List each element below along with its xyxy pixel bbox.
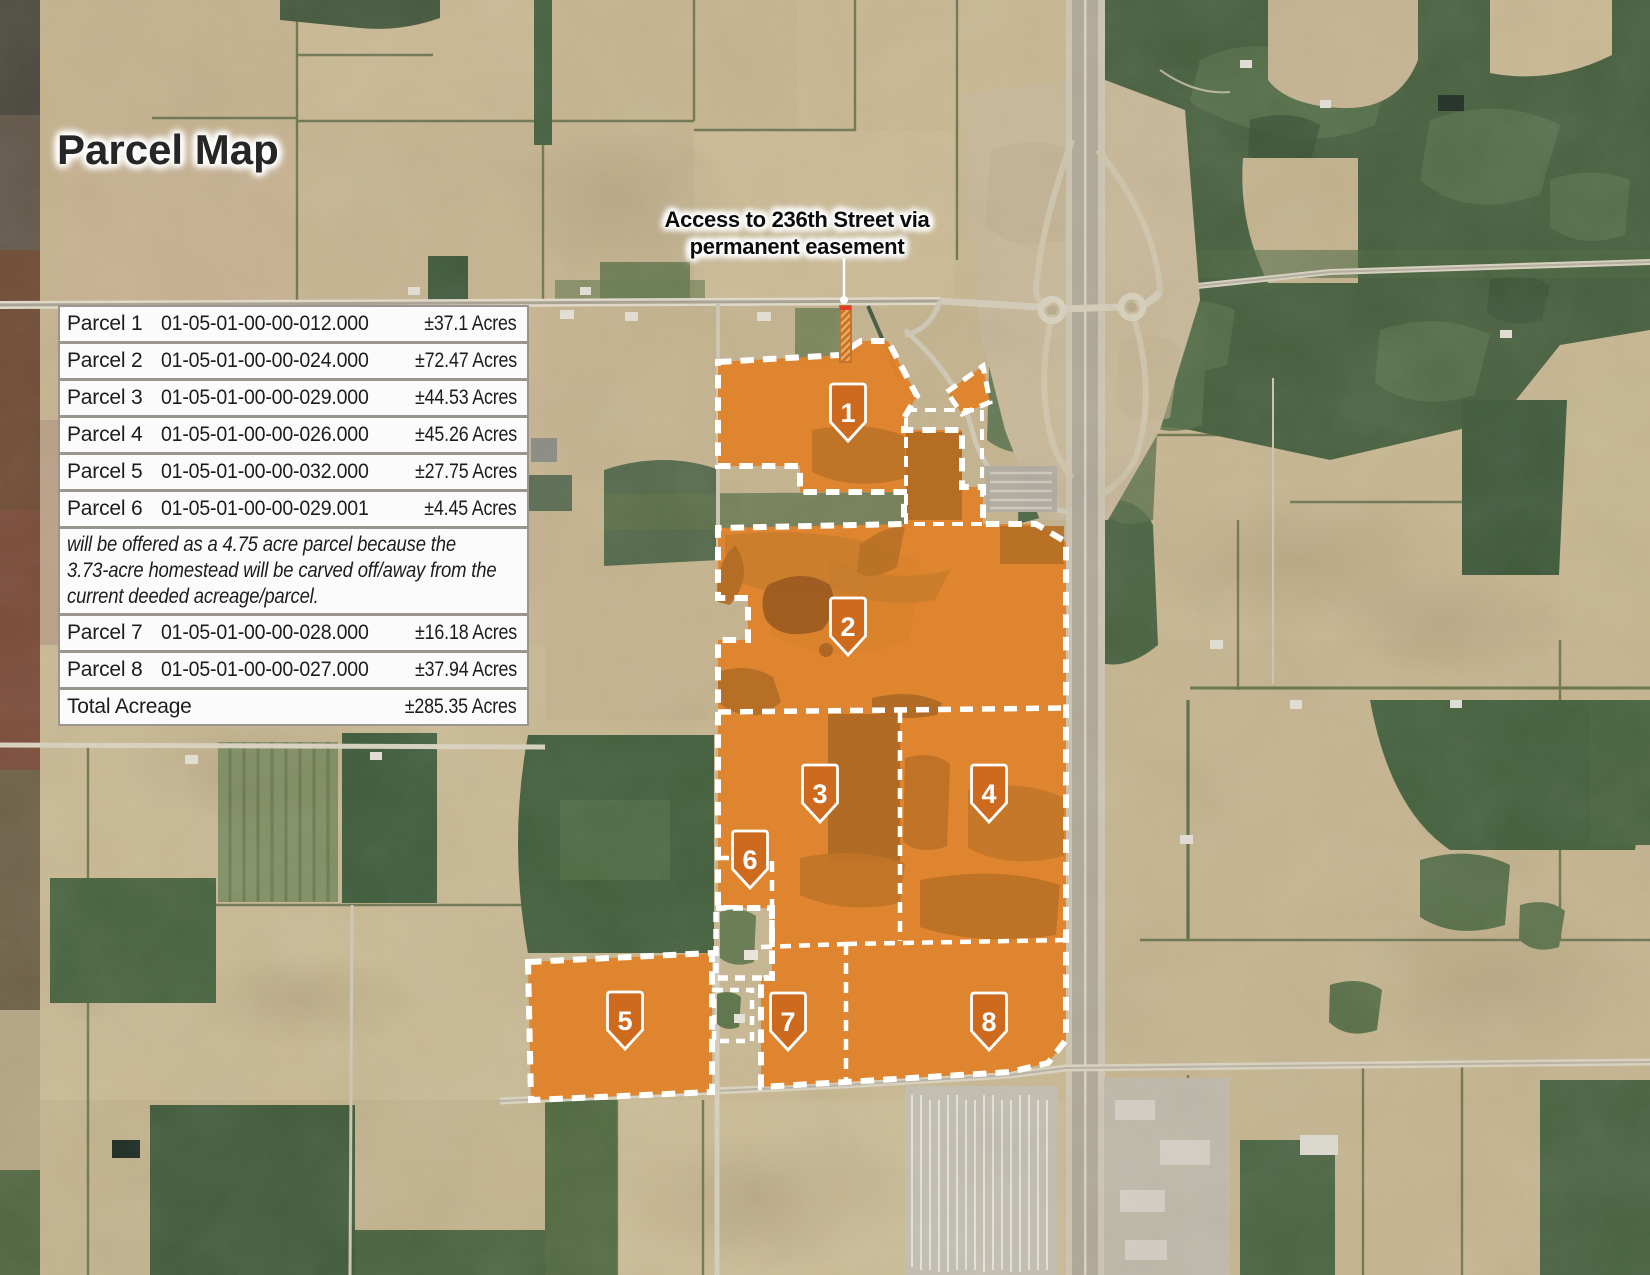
svg-text:4: 4 xyxy=(981,779,996,809)
svg-text:1: 1 xyxy=(840,398,855,428)
svg-text:2: 2 xyxy=(840,612,855,642)
svg-text:3: 3 xyxy=(812,779,827,809)
svg-text:7: 7 xyxy=(780,1007,795,1037)
svg-text:6: 6 xyxy=(742,845,757,875)
svg-text:5: 5 xyxy=(617,1006,632,1036)
svg-text:8: 8 xyxy=(981,1007,996,1037)
